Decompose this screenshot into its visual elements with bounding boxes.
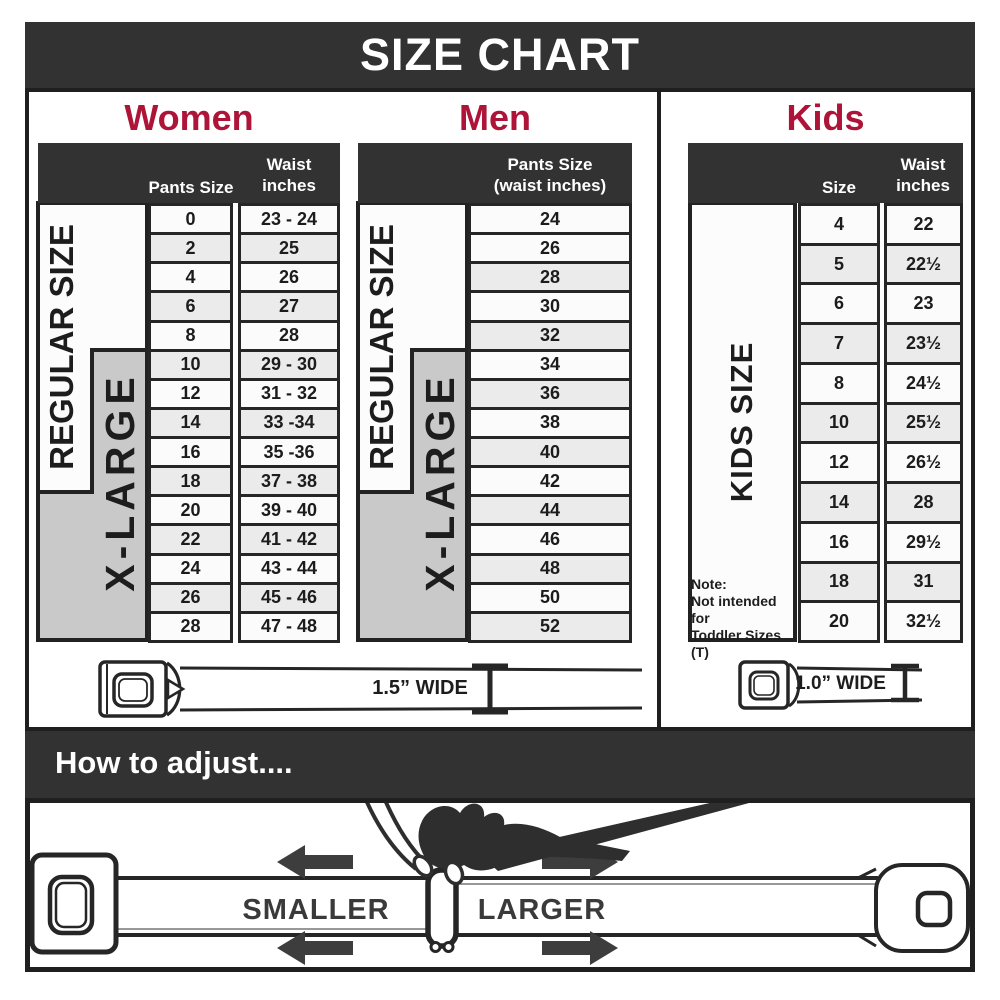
men-col-header-line1: Pants Size — [468, 154, 632, 175]
size-chart-page: SIZE CHART Women Men Kids Pants Size Wai… — [0, 0, 1000, 1000]
men-size-cell: 38 — [468, 407, 632, 439]
women-size-cell: 18 — [148, 465, 233, 497]
kids-size-cell: 8 — [798, 362, 880, 405]
men-size-cell: 40 — [468, 436, 632, 468]
smaller-arrow-top-icon — [277, 845, 353, 879]
women-size-cell: 28 — [148, 611, 233, 643]
kids-size-cell: 23 — [884, 282, 963, 325]
kids-size-cell: 12 — [798, 441, 880, 484]
men-regular-size-label: REGULAR SIZE — [358, 197, 406, 497]
kids-note: Note: Not intended for Toddler Sizes (T) — [691, 576, 797, 661]
kids-size-cell: 4 — [798, 203, 880, 246]
kids-size-cell: 6 — [798, 282, 880, 325]
women-size-cell: 12 — [148, 378, 233, 410]
women-size-cell: 0 — [148, 203, 233, 235]
smaller-label: SMALLER — [226, 894, 406, 927]
belt-strap-top — [180, 668, 642, 670]
women-size-cell: 16 — [148, 436, 233, 468]
pinching-hand-icon — [366, 803, 749, 886]
kids-size-cell: 22 — [884, 203, 963, 246]
women-size-cell: 10 — [148, 349, 233, 381]
men-size-cell: 30 — [468, 290, 632, 322]
women-size-cell: 41 - 42 — [238, 523, 340, 555]
women-size-cell: 39 - 40 — [238, 494, 340, 526]
men-size-cell: 34 — [468, 349, 632, 381]
adult-belt-width-label: 1.5” WIDE — [345, 676, 495, 700]
kids-size-cell: 5 — [798, 243, 880, 286]
kids-size-cell: 24½ — [884, 362, 963, 405]
women-size-cell: 8 — [148, 320, 233, 352]
kids-size-cell: 32½ — [884, 600, 963, 643]
kids-col2-header: Waist inches — [880, 154, 966, 196]
women-size-cell: 25 — [238, 232, 340, 264]
women-size-cell: 26 — [148, 582, 233, 614]
women-size-cell: 33 -34 — [238, 407, 340, 439]
kids-note-line1: Note: — [691, 576, 797, 593]
women-size-cell: 2 — [148, 232, 233, 264]
size-chart-banner: SIZE CHART — [25, 22, 975, 88]
kids-col2-header-line2: inches — [880, 175, 966, 196]
men-size-cell: 26 — [468, 232, 632, 264]
men-size-cell: 36 — [468, 378, 632, 410]
men-xlarge-label: X-LARGE — [413, 332, 467, 632]
kids-size-cell: 31 — [884, 561, 963, 604]
kids-size-cell: 18 — [798, 561, 880, 604]
kids-size-cell: 7 — [798, 322, 880, 365]
men-size-cell: 32 — [468, 320, 632, 352]
women-col2-header: Waist inches — [236, 154, 342, 196]
larger-label: LARGER — [462, 894, 622, 927]
kids-note-line2: Not intended for — [691, 593, 797, 627]
kids-size-cell: 10 — [798, 402, 880, 445]
women-size-cell: 43 - 44 — [238, 553, 340, 585]
kids-size-cell: 22½ — [884, 243, 963, 286]
belt-strap-bottom — [180, 708, 642, 710]
how-to-adjust-heading: How to adjust.... — [55, 745, 293, 781]
men-size-cell: 24 — [468, 203, 632, 235]
women-col2-header-line1: Waist — [236, 154, 342, 175]
women-xlarge-label: X-LARGE — [93, 332, 147, 632]
women-size-cell: 45 - 46 — [238, 582, 340, 614]
kids-col2-header-line1: Waist — [880, 154, 966, 175]
section-divider — [657, 92, 661, 729]
women-size-cell: 31 - 32 — [238, 378, 340, 410]
women-size-cell: 22 — [148, 523, 233, 555]
men-col-header-line2: (waist inches) — [468, 175, 632, 196]
women-size-cell: 6 — [148, 290, 233, 322]
men-size-cell: 52 — [468, 611, 632, 643]
kids-size-cell: 16 — [798, 521, 880, 564]
men-size-cell: 46 — [468, 523, 632, 555]
adjust-illustration-panel — [25, 798, 975, 972]
women-size-cell: 47 - 48 — [238, 611, 340, 643]
men-size-cell: 44 — [468, 494, 632, 526]
kids-size-cell: 26½ — [884, 441, 963, 484]
kids-size-cell: 25½ — [884, 402, 963, 445]
kids-size-cell: 14 — [798, 481, 880, 524]
men-size-cell: 28 — [468, 261, 632, 293]
women-size-cell: 37 - 38 — [238, 465, 340, 497]
belt-tongue-icon — [876, 865, 968, 951]
women-size-cell: 28 — [238, 320, 340, 352]
women-col2-header-line2: inches — [236, 175, 342, 196]
kids-col1-header: Size — [796, 177, 882, 198]
women-size-cell: 4 — [148, 261, 233, 293]
men-size-cell: 50 — [468, 582, 632, 614]
kids-size-cell: 23½ — [884, 322, 963, 365]
women-size-cell: 27 — [238, 290, 340, 322]
women-size-cell: 26 — [238, 261, 340, 293]
men-col-header: Pants Size (waist inches) — [468, 154, 632, 196]
women-size-cell: 20 — [148, 494, 233, 526]
kids-size-label: KIDS SIZE — [718, 272, 766, 572]
women-size-cell: 23 - 24 — [238, 203, 340, 235]
women-size-cell: 24 — [148, 553, 233, 585]
adjust-belt-illustration — [30, 803, 970, 967]
women-col1-header: Pants Size — [146, 177, 236, 198]
men-size-cell: 48 — [468, 553, 632, 585]
kids-size-cell: 20 — [798, 600, 880, 643]
kids-size-cell: 28 — [884, 481, 963, 524]
men-size-cell: 42 — [468, 465, 632, 497]
women-size-cell: 14 — [148, 407, 233, 439]
women-size-cell: 35 -36 — [238, 436, 340, 468]
women-size-cell: 29 - 30 — [238, 349, 340, 381]
women-regular-size-label: REGULAR SIZE — [38, 197, 86, 497]
kids-belt-width-label: 1.0” WIDE — [778, 674, 903, 694]
kids-size-cell: 29½ — [884, 521, 963, 564]
